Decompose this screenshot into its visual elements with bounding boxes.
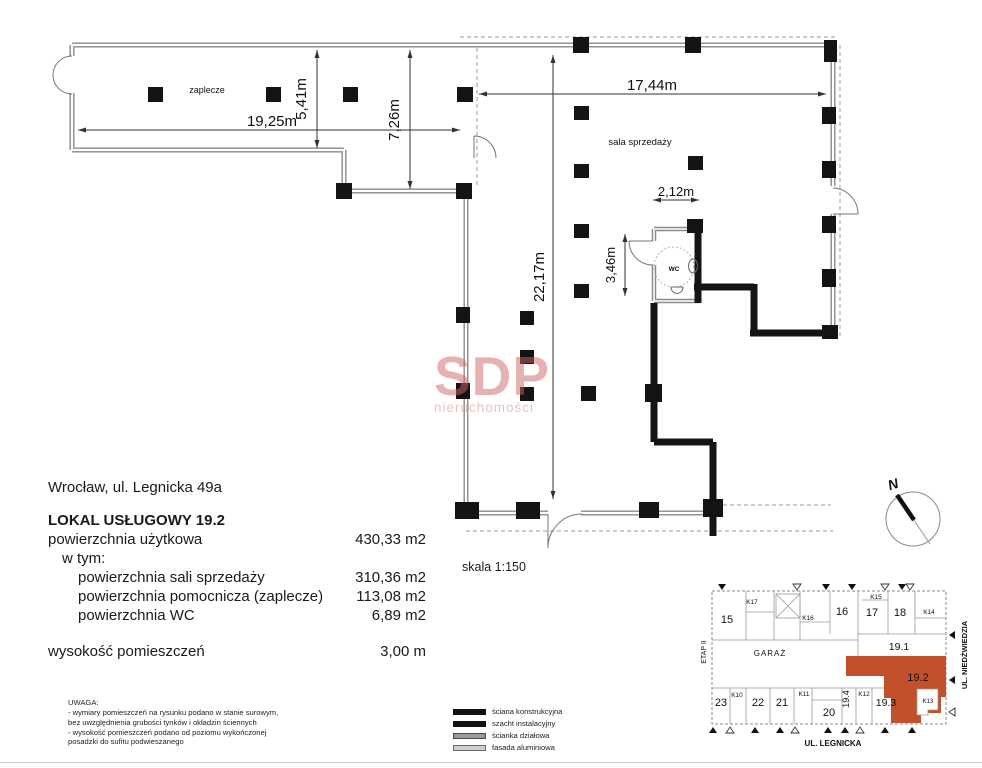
shaft-swatch-icon — [453, 721, 486, 727]
site-map-unit-15: 15 — [721, 614, 733, 626]
site-map-street-legnicka: UL. LEGNICKA — [805, 739, 862, 748]
dim-sala-depth: 22,17m — [531, 252, 548, 302]
dim-wc-width: 2,12m — [658, 184, 694, 199]
legend-row-structural: ściana konstrukcyjna — [453, 707, 563, 716]
dim-zaplecze-depth: 5,41m — [293, 78, 310, 120]
height-label: wysokość pomieszczeń — [48, 642, 205, 661]
structural-wall-pilasters — [645, 219, 838, 517]
notes-title: UWAGA: — [68, 698, 286, 708]
aluminium-facade-dashed-lines — [460, 37, 840, 531]
sala-room-label: sala sprzedaży — [608, 137, 672, 148]
site-map-unit-19-3: 19.3 — [876, 697, 897, 709]
legend-partition-label: ścianka działowa — [492, 731, 549, 740]
area-wc-row: powierzchnia WC 6,89 m2 — [48, 606, 426, 625]
site-map-unit-k10: K10 — [731, 692, 743, 699]
in-that-row: w tym: — [48, 549, 426, 568]
wc-fixtures: WC — [654, 247, 698, 294]
height-row: wysokość pomieszczeń 3,00 m — [48, 642, 426, 661]
in-that-label: w tym: — [62, 549, 105, 568]
site-map-unit-16: 16 — [836, 606, 848, 618]
site-map-street-niedzwiedzia: UL. NIEDŹWIEDZIA — [960, 620, 969, 689]
area-aux-value: 113,08 m2 — [356, 587, 426, 606]
site-map-unit-17: 17 — [866, 607, 878, 619]
area-aux-label: powierzchnia pomocnicza (zaplecze) — [78, 587, 323, 606]
site-map-unit-21: 21 — [776, 697, 788, 709]
columns-and-shafts — [148, 37, 837, 519]
sala-side-door-icon — [833, 188, 858, 214]
site-map-unit-k15: K15 — [870, 594, 882, 601]
height-value: 3,00 m — [380, 642, 426, 661]
property-details: LOKAL USŁUGOWY 19.2 powierzchnia użytkow… — [48, 512, 426, 661]
site-map-unit-k11: K11 — [798, 691, 809, 698]
area-total-label: powierzchnia użytkowa — [48, 530, 202, 549]
legend: ściana konstrukcyjna szacht instalacyjny… — [453, 707, 563, 755]
zaplecze-entrance-door-icon — [53, 56, 72, 94]
site-map-unit-19-2: 19.2 — [907, 672, 928, 684]
site-map-unit-k13: K13 — [923, 699, 934, 705]
legend-row-facade: fasada aluminiowa — [453, 743, 563, 752]
site-map-unit-k16: K16 — [802, 615, 814, 622]
facade-swatch-icon — [453, 745, 486, 751]
site-map-unit-23: 23 — [715, 697, 727, 709]
page-divider — [0, 762, 982, 763]
structural-walls — [654, 222, 834, 536]
toilet-icon — [671, 287, 683, 294]
site-map-etap-label: ETAP II — [701, 640, 708, 664]
address: Wrocław, ul. Legnicka 49a — [48, 479, 222, 496]
wc-door-icon — [629, 241, 653, 265]
dimension-lines — [78, 50, 826, 499]
dim-sala-width: 17,44m — [627, 77, 677, 94]
notes: UWAGA: - wymiary pomieszczeń na rysunku … — [68, 698, 286, 747]
site-map-unit-19-1: 19.1 — [889, 641, 910, 653]
site-map-unit-19-4: 19.4 — [841, 690, 851, 708]
area-sala-label: powierzchnia sali sprzedaży — [78, 568, 265, 587]
dim-zaplecze-width: 19,25m — [247, 113, 297, 130]
partition-wall-swatch-icon — [453, 733, 486, 739]
legend-structural-label: ściana konstrukcyjna — [492, 707, 563, 716]
site-map-unit-k12: K12 — [858, 691, 870, 698]
dim-wc-depth: 3,46m — [603, 247, 618, 283]
compass-icon: N — [886, 475, 940, 546]
structural-wall-swatch-icon — [453, 709, 486, 715]
wc-room-label: WC — [669, 266, 680, 273]
notes-line-1: - wymiary pomieszczeń na rysunku podano … — [68, 708, 286, 728]
wc-partition-walls — [654, 229, 700, 301]
area-sala-row: powierzchnia sali sprzedaży 310,36 m2 — [48, 568, 426, 587]
floor-plan-page: WC zaplecze sala sprzedaży 19,25m 5,41m … — [0, 0, 982, 768]
compass-north-label: N — [886, 475, 901, 494]
notes-line-2: - wysokość pomieszczeń podano od poziomu… — [68, 728, 286, 748]
zaplecze-room-label: zaplecze — [189, 85, 225, 95]
property-title: LOKAL USŁUGOWY 19.2 — [48, 512, 426, 529]
site-map-garage: GARAŻ — [754, 649, 787, 658]
site-map: 15 K17 K16 16 17 K15 18 K14 19.1 19.2 GA… — [701, 584, 969, 748]
dim-step-depth: 7,26m — [386, 99, 403, 141]
area-aux-row: powierzchnia pomocnicza (zaplecze) 113,0… — [48, 587, 426, 606]
site-map-unit-18: 18 — [894, 607, 906, 619]
legend-shaft-label: szacht instalacyjny — [492, 719, 555, 728]
dimension-arrowheads — [78, 50, 826, 499]
area-total-row: powierzchnia użytkowa 430,33 m2 — [48, 530, 426, 549]
area-wc-value: 6,89 m2 — [372, 606, 426, 625]
exterior-walls — [72, 45, 836, 513]
site-map-unit-k14: K14 — [923, 609, 935, 616]
legend-row-shaft: szacht instalacyjny — [453, 719, 563, 728]
area-wc-label: powierzchnia WC — [78, 606, 195, 625]
legend-facade-label: fasada aluminiowa — [492, 743, 555, 752]
area-total-value: 430,33 m2 — [355, 530, 426, 549]
area-sala-value: 310,36 m2 — [355, 568, 426, 587]
scale-label: skala 1:150 — [462, 560, 526, 574]
site-map-unit-k17: K17 — [746, 599, 758, 606]
site-map-unit-20: 20 — [823, 707, 835, 719]
legend-row-partition: ścianka działowa — [453, 731, 563, 740]
site-map-unit-22: 22 — [752, 697, 764, 709]
